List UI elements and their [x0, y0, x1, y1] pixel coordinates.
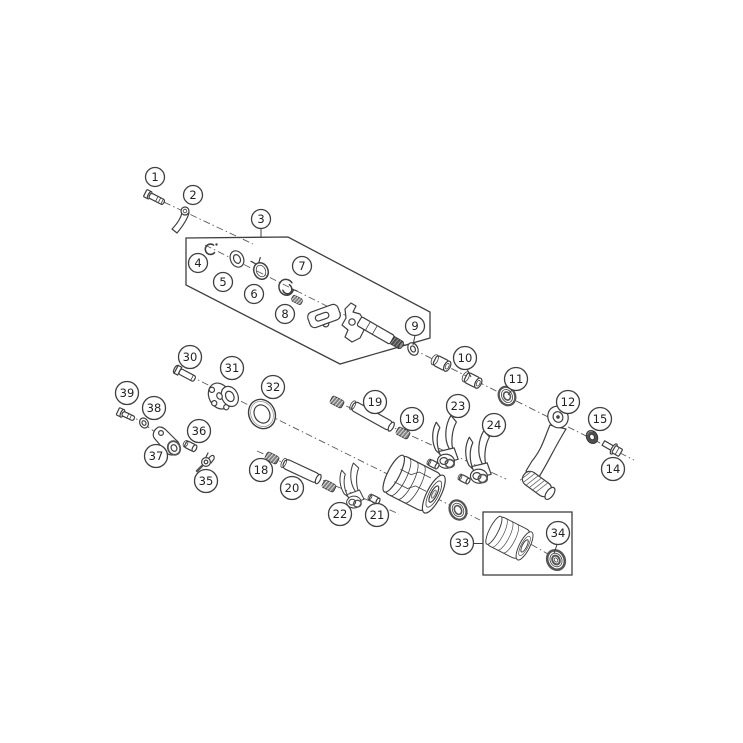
callout-1[interactable]: 1	[146, 168, 165, 187]
callout-22[interactable]: 22	[329, 503, 352, 526]
part-bolt-39	[116, 407, 136, 422]
part-spring-right-20	[321, 479, 336, 492]
part-roller-10b	[461, 371, 484, 390]
callout-32[interactable]: 32	[262, 376, 285, 399]
part-circlip-4	[205, 243, 217, 254]
part-shift-lever-12	[520, 403, 572, 502]
callout-number: 3	[257, 212, 264, 226]
callout-24[interactable]: 24	[483, 414, 506, 437]
callout-number: 23	[451, 399, 466, 413]
callout-number: 12	[561, 395, 576, 409]
callout-number: 11	[509, 372, 524, 386]
callout-number: 1	[151, 170, 158, 184]
callout-number: 37	[149, 449, 164, 463]
callout-number: 8	[281, 307, 288, 321]
callout-number: 36	[192, 424, 207, 438]
part-bolt-1	[143, 189, 165, 206]
part-fork-roller-24	[457, 473, 471, 484]
parts-diagram-page: 1234567891011121514191823243031323938363…	[0, 0, 743, 743]
callout-number: 14	[606, 462, 621, 476]
callout-38[interactable]: 38	[143, 397, 166, 420]
callout-number: 33	[455, 536, 470, 550]
part-shift-shaft	[357, 317, 405, 351]
part-clip-6	[249, 256, 271, 281]
callout-number: 19	[368, 395, 383, 409]
callout-number: 39	[120, 386, 135, 400]
callout-37[interactable]: 37	[145, 445, 168, 468]
part-ring-32	[244, 395, 281, 434]
callout-number: 4	[194, 256, 201, 270]
part-washer-15	[584, 428, 600, 445]
callout-number: 32	[266, 380, 281, 394]
part-detent-35	[197, 453, 214, 471]
callout-2[interactable]: 2	[184, 186, 203, 205]
callout-31[interactable]: 31	[221, 357, 244, 380]
part-spring-left-19	[329, 395, 344, 408]
callout-number: 22	[333, 507, 348, 521]
callout-33[interactable]: 33	[451, 532, 484, 555]
callout-15[interactable]: 15	[589, 408, 612, 431]
callout-number: 5	[219, 275, 226, 289]
callout-number: 6	[250, 287, 257, 301]
part-spring-8	[291, 295, 303, 306]
callout-5[interactable]: 5	[214, 273, 233, 292]
part-roller-10a	[430, 354, 453, 373]
callout-35[interactable]: 35	[195, 470, 218, 493]
callout-20[interactable]: 20	[281, 477, 304, 500]
part-locating-cam-31	[204, 376, 242, 414]
callout-number: 35	[199, 474, 214, 488]
callout-21[interactable]: 21	[366, 504, 389, 527]
part-pin-21	[367, 493, 381, 504]
part-shift-fork-22	[339, 463, 364, 509]
callout-number: 18	[405, 412, 420, 426]
callout-number: 31	[225, 361, 240, 375]
exploded-diagram: 1234567891011121514191823243031323938363…	[0, 0, 743, 743]
callout-3[interactable]: 3	[252, 210, 271, 238]
part-shift-fork-24	[463, 429, 495, 484]
part-spiral-retainer-7	[277, 277, 298, 298]
callout-number: 9	[411, 319, 418, 333]
callout-4[interactable]: 4	[189, 254, 208, 273]
part-bolt-14	[600, 438, 623, 458]
callout-12[interactable]: 12	[557, 391, 580, 414]
callout-number: 30	[183, 350, 198, 364]
callout-number: 34	[551, 526, 566, 540]
callout-number: 20	[285, 481, 300, 495]
callout-8[interactable]: 8	[276, 305, 295, 324]
callout-number: 18	[254, 463, 269, 477]
part-drum-assembly-33	[483, 514, 537, 562]
callout-number: 38	[147, 401, 162, 415]
callout-30[interactable]: 30	[179, 346, 202, 369]
callout-number: 21	[370, 508, 385, 522]
callout-14[interactable]: 14	[602, 458, 625, 481]
callout-6[interactable]: 6	[245, 285, 264, 304]
part-bearing-34	[544, 547, 568, 573]
callout-number: 2	[189, 188, 196, 202]
callout-36[interactable]: 36	[188, 420, 211, 443]
callout-19[interactable]: 19	[364, 391, 387, 414]
part-slotted-plate	[306, 303, 343, 332]
callout-7[interactable]: 7	[293, 257, 312, 276]
callout-number: 15	[593, 412, 608, 426]
callout-34[interactable]: 34	[547, 522, 570, 554]
part-drum-seal	[446, 497, 469, 522]
callout-39[interactable]: 39	[116, 382, 139, 405]
callout-number: 24	[487, 418, 502, 432]
callout-23[interactable]: 23	[447, 395, 470, 418]
callout-18[interactable]: 18	[250, 459, 273, 482]
part-washer-5	[228, 249, 247, 270]
callout-number: 7	[298, 259, 305, 273]
part-lever-2	[172, 207, 189, 233]
callout-18[interactable]: 18	[401, 408, 424, 431]
callout-number: 10	[458, 351, 473, 365]
